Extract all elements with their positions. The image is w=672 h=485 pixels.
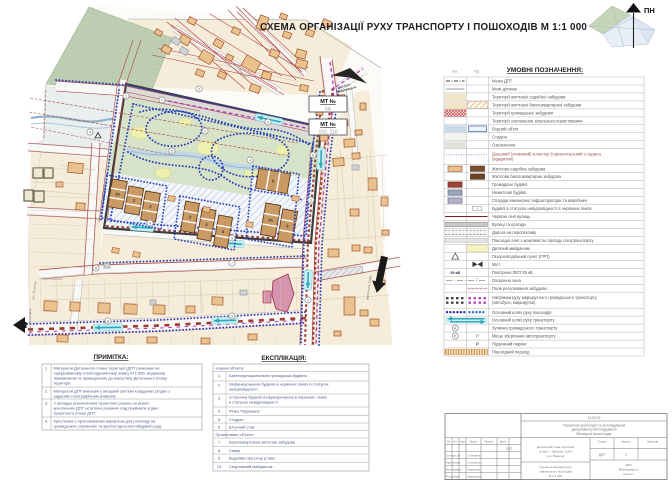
svg-text:в статусах невідповідності: в статусах невідповідності [229, 399, 278, 404]
svg-text:Архітектор: Архітектор [446, 461, 461, 465]
svg-text:Дата: Дата [500, 440, 507, 444]
svg-text:102, 110: 102, 110 [318, 130, 337, 136]
svg-text:ДПТ: ДПТ [599, 453, 606, 457]
svg-text:Степанов: Степанов [468, 454, 481, 458]
svg-text:Стадія: Стадія [598, 440, 607, 444]
svg-text:2022: 2022 [506, 447, 513, 451]
svg-text:6.: 6. [218, 424, 221, 429]
svg-text:2: 2 [198, 87, 200, 91]
svg-text:МТ №: МТ № [320, 99, 336, 105]
svg-text:Арк: Арк [460, 440, 466, 444]
svg-text:10.: 10. [217, 464, 223, 469]
svg-text:Території житлової багатокварт: Території житлової багатоквартирної забу… [492, 103, 582, 108]
svg-text:3: 3 [310, 198, 312, 202]
svg-text:Багатоквартирна житлова забудо: Багатоквартирна житлова забудова [229, 439, 296, 444]
svg-text:5: 5 [171, 149, 173, 153]
svg-text:Нежитлові будівлі: Нежитлові будівлі [492, 190, 526, 195]
svg-text:проектного плану ДПТ.: проектного плану ДПТ. [54, 411, 96, 416]
svg-text:А: А [454, 327, 457, 331]
svg-text:Кудлаєнко: Кудлаєнко [468, 475, 482, 479]
svg-text:№док: №док [470, 440, 478, 444]
svg-text:Сквер: Сквер [229, 448, 241, 453]
svg-text:Озеленення: Озеленення [492, 142, 515, 147]
svg-text:Стадіон: Стадіон [229, 417, 244, 422]
svg-text:8: 8 [107, 319, 109, 323]
svg-text:Кирилова: Кирилова [468, 468, 481, 472]
svg-text:наданим топографічним знімком): наданим топографічним знімком). [54, 394, 117, 399]
svg-text:9.: 9. [218, 455, 221, 460]
svg-text:до вул. Виноградна: до вул. Виноградна [28, 308, 32, 334]
svg-text:35 кВ: 35 кВ [450, 271, 460, 275]
svg-text:Стадіон: Стадіон [492, 134, 507, 139]
svg-text:невідповідності: невідповідності [229, 386, 258, 391]
svg-text:Території озеленення загальног: Території озеленення загального користув… [492, 118, 583, 123]
svg-text:1478.02: 1478.02 [588, 416, 601, 420]
svg-text:у м. Вінниця: у м. Вінниця [547, 454, 565, 458]
svg-text:території.: території. [54, 381, 72, 386]
svg-text:3.: 3. [45, 401, 48, 406]
svg-text:6: 6 [312, 153, 314, 157]
svg-text:4: 4 [89, 130, 91, 134]
svg-text:6: 6 [95, 266, 97, 270]
svg-text:Дитячий майданчик: Дитячий майданчик [492, 246, 530, 251]
svg-text:ПН: ПН [644, 6, 655, 15]
svg-text:Штучний став: Штучний став [229, 424, 255, 429]
svg-text:1.: 1. [218, 373, 221, 378]
svg-text:Водний об'єкт: Водний об'єкт [492, 126, 519, 131]
svg-text:Р: Р [476, 334, 479, 339]
svg-text:5А: 5А [325, 107, 332, 113]
svg-text:Підземний паркінг: Підземний паркінг [492, 342, 527, 347]
svg-text:Межа ДПТ: Межа ДПТ [492, 79, 513, 84]
svg-text:Підпис: Підпис [484, 440, 494, 444]
svg-text:проект": проект" [623, 472, 634, 476]
svg-text:Житлова багатоквартирна забудо: Житлова багатоквартирна забудова [492, 174, 562, 179]
svg-text:ПРИМІТКА:: ПРИМІТКА: [93, 354, 128, 361]
svg-text:Аркуш: Аркуш [622, 440, 631, 444]
svg-text:Місце зберігання автотранспорт: Місце зберігання автотранспорту [492, 334, 557, 339]
svg-text:М 1:1 000: М 1:1 000 [549, 474, 563, 478]
svg-text:Вінницької міської ради: Вінницької міської ради [577, 432, 612, 436]
svg-text:Будівлі в статусах невідповідн: Будівлі в статусах невідповідності в чер… [492, 206, 593, 211]
svg-text:Території житлової садибної за: Території житлової садибної забудови [492, 95, 566, 100]
svg-text:Нач.відділу: Нач.відділу [446, 468, 462, 472]
svg-text:Річка "Мурунька": Річка "Мурунька" [229, 408, 261, 413]
svg-text:Розробив: Розробив [446, 475, 459, 479]
svg-text:7: 7 [161, 98, 163, 102]
svg-text:по вул. І. Франка, 118 б: по вул. І. Франка, 118 б [539, 449, 573, 453]
svg-text:Пр.: Пр. [474, 70, 480, 74]
svg-text:Газорозподільний пункт (ГРП): Газорозподільний пункт (ГРП) [492, 254, 550, 259]
svg-text:Спортивний майданчик: Спортивний майданчик [229, 464, 273, 469]
svg-text:4.: 4. [45, 419, 48, 424]
svg-text:9: 9 [231, 314, 233, 318]
svg-text:ЕКСПЛІКАЦІЯ:: ЕКСПЛІКАЦІЯ: [261, 355, 306, 362]
svg-text:4: 4 [249, 158, 251, 162]
svg-text:Пішохідні алеї з можливістю пр: Пішохідні алеї з можливістю проїзду спец… [492, 238, 595, 243]
svg-text:3.: 3. [218, 395, 221, 400]
svg-text:1А: 1А [268, 217, 274, 223]
svg-text:1: 1 [625, 453, 627, 457]
svg-text:v: v [477, 276, 479, 280]
svg-text:громадських слуханнях та архіт: громадських слуханнях та архітектурно-мі… [54, 424, 163, 429]
svg-text:транспорту і пішоходів: транспорту і пішоходів [539, 469, 572, 473]
svg-text:Гол.арх.пр: Гол.арх.пр [446, 454, 460, 458]
svg-text:Охоронна зона: Охоронна зона [492, 278, 522, 283]
svg-text:МТ №: МТ № [320, 122, 336, 128]
svg-text:Зм: Зм [447, 440, 451, 444]
svg-text:Території громадської забудови: Території громадської забудови [492, 111, 554, 116]
svg-text:Багатофункціональна громадська: Багатофункціональна громадська будівля [229, 373, 307, 378]
svg-text:Межі ділянок: Межі ділянок [492, 87, 517, 92]
svg-text:(відкритий): (відкритий) [492, 156, 514, 161]
svg-text:Проектовані обʼєкти:: Проектовані обʼєкти: [216, 432, 254, 437]
svg-text:Степанов: Степанов [468, 461, 481, 465]
svg-text:5: 5 [231, 236, 233, 240]
svg-text:Основний шлях руху транспорту: Основний шлях руху транспорту [492, 318, 556, 323]
svg-text:Вулиці та проїзди: Вулиці та проїзди [492, 222, 526, 227]
svg-text:1А: 1А [115, 191, 121, 197]
svg-text:Зупинка громадського транспорт: Зупинка громадського транспорту [492, 326, 558, 331]
svg-text:3: 3 [267, 120, 269, 124]
svg-text:УМОВНІ ПОЗНАЧЕННЯ:: УМОВНІ ПОЗНАЧЕННЯ: [507, 67, 583, 74]
svg-text:1: 1 [125, 94, 127, 98]
svg-text:1: 1 [204, 129, 206, 133]
svg-text:Детальний план території: Детальний план території [537, 445, 574, 449]
svg-text:4: 4 [149, 221, 151, 225]
svg-text:Червоні лінії вулиць: Червоні лінії вулиць [492, 214, 530, 219]
svg-text:ДГП: ДГП [626, 463, 632, 467]
svg-text:вул. Тополина: вул. Тополина [44, 277, 63, 281]
svg-text:Міст: Міст [492, 262, 500, 267]
svg-text:(автобуси, маршрутки): (автобуси, маршрутки) [492, 300, 536, 305]
svg-text:Існуючі обʼєкти:: Існуючі обʼєкти: [216, 365, 245, 370]
svg-text:Р: Р [454, 335, 457, 339]
svg-text:Житлово-садибна забудова: Житлово-садибна забудова [492, 166, 546, 171]
svg-text:2.: 2. [218, 382, 221, 387]
svg-text:4.: 4. [218, 408, 221, 413]
svg-text:Існ.: Існ. [452, 70, 458, 74]
svg-text:7: 7 [231, 261, 233, 265]
svg-text:Схема організації руху: Схема організації руху [539, 465, 572, 469]
svg-text:Повітряна ЛЕП 35 кВ: Повітряна ЛЕП 35 кВ [492, 270, 533, 275]
svg-text:Громадські будівлі: Громадські будівлі [492, 182, 527, 187]
svg-text:Пішохідний перехід: Пішохідний перехід [492, 350, 530, 355]
svg-text:8.: 8. [218, 448, 221, 453]
svg-text:Кіл: Кіл [453, 440, 457, 444]
svg-text:7.: 7. [218, 439, 221, 444]
svg-text:2.: 2. [45, 389, 48, 394]
svg-text:1.: 1. [45, 366, 48, 371]
svg-text:2: 2 [307, 298, 309, 302]
svg-text:СХЕМА ОРГАНІЗАЦІЇ РУХУ ТРАНСПО: СХЕМА ОРГАНІЗАЦІЇ РУХУ ТРАНСПОРТУ І ПОШО… [260, 22, 587, 33]
svg-text:Водойма при річці (став): Водойма при річці (став) [229, 455, 275, 460]
svg-text:5.: 5. [218, 417, 221, 422]
svg-text:"Вінницямісто-: "Вінницямісто- [618, 467, 639, 471]
svg-text:Поле регулювання забудови: Поле регулювання забудови [492, 286, 547, 291]
svg-text:Основний шлях руху пішоходів: Основний шлях руху пішоходів [492, 310, 552, 315]
svg-text:Дорога на перспективу: Дорога на перспективу [492, 230, 537, 235]
svg-text:Р: Р [476, 342, 479, 347]
svg-text:Аркушів: Аркушів [647, 440, 658, 444]
svg-text:Споруди інженерної інфраструкт: Споруди інженерної інфраструктури та вир… [492, 198, 587, 203]
